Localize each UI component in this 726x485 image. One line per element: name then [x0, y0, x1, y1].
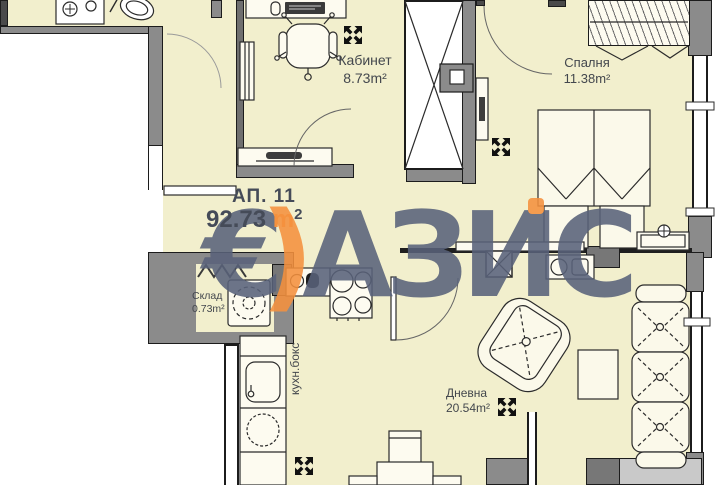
office-tv-stand [238, 148, 332, 166]
kitchen-door [391, 277, 458, 340]
bedroom-tv-unit [476, 78, 488, 140]
sofa [632, 285, 689, 468]
bathroom-fixtures [56, 0, 157, 24]
office-cabinet [240, 42, 254, 100]
kitchen-column [240, 336, 286, 485]
bed [538, 110, 650, 248]
floor-plan: € ) АЗ И С АП. 11 92.73 m2 Кабинет 8.73m… [0, 0, 726, 485]
coffee-table [578, 350, 618, 399]
bedside-table [637, 225, 689, 250]
window-sills [684, 102, 714, 326]
storage-zigzag-door [198, 265, 246, 277]
hall-door-arc [167, 34, 221, 88]
office-label: Кабинет 8.73m² [320, 52, 410, 87]
expand-icon [496, 396, 518, 418]
armchair [470, 291, 577, 399]
kitchen-label: кухн.бокс [288, 326, 303, 412]
entry-door-leaf [164, 186, 236, 195]
shaft-cross [405, 1, 473, 169]
expand-icon [293, 455, 315, 477]
apartment-number: АП. 11 [232, 186, 296, 208]
double-sink [546, 255, 594, 279]
apartment-area: 92.73 m2 [206, 206, 302, 234]
expand-icon [342, 24, 364, 46]
bedroom-label: Спалня 11.38m² [542, 55, 632, 88]
counter-shelf [456, 242, 584, 251]
storage-label: Склад 0.73m² [192, 290, 248, 316]
dining-set [349, 431, 461, 485]
living-label: Дневна 20.54m² [446, 386, 502, 416]
hob-square [486, 251, 512, 277]
expand-icon [490, 136, 512, 158]
kitchen-sink-cabinet [286, 268, 330, 296]
stove [330, 268, 372, 321]
